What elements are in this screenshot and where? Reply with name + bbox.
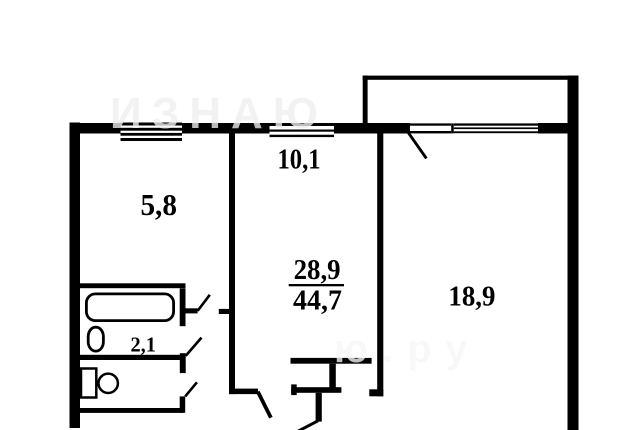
svg-text:5,8: 5,8 — [140, 188, 177, 222]
svg-text:10,1: 10,1 — [278, 143, 321, 175]
svg-text:ИЗНАЮ: ИЗНАЮ — [110, 89, 328, 138]
svg-text:ю.ру: ю.ру — [334, 327, 481, 371]
svg-text:28,9: 28,9 — [294, 254, 341, 286]
svg-text:18,9: 18,9 — [448, 280, 495, 312]
svg-text:2,1: 2,1 — [130, 332, 156, 356]
svg-text:44,7: 44,7 — [293, 285, 342, 317]
